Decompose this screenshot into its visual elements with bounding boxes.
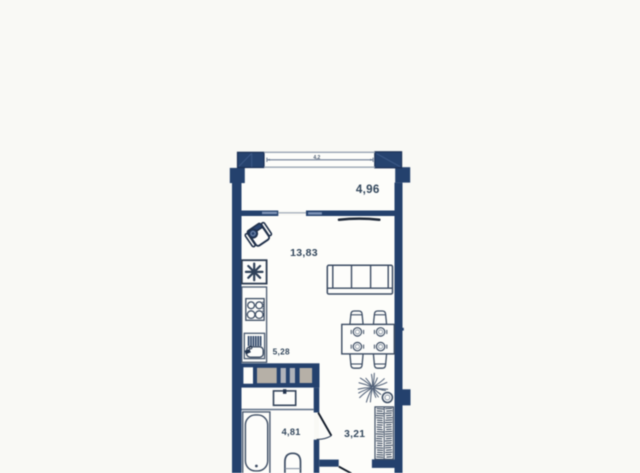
svg-text:5,28: 5,28 bbox=[273, 347, 290, 357]
svg-text:4,2: 4,2 bbox=[313, 155, 320, 161]
svg-text:13,83: 13,83 bbox=[290, 247, 318, 259]
svg-text:4,81: 4,81 bbox=[282, 427, 301, 437]
svg-text:3,21: 3,21 bbox=[344, 429, 365, 440]
svg-text:4,96: 4,96 bbox=[356, 183, 380, 196]
